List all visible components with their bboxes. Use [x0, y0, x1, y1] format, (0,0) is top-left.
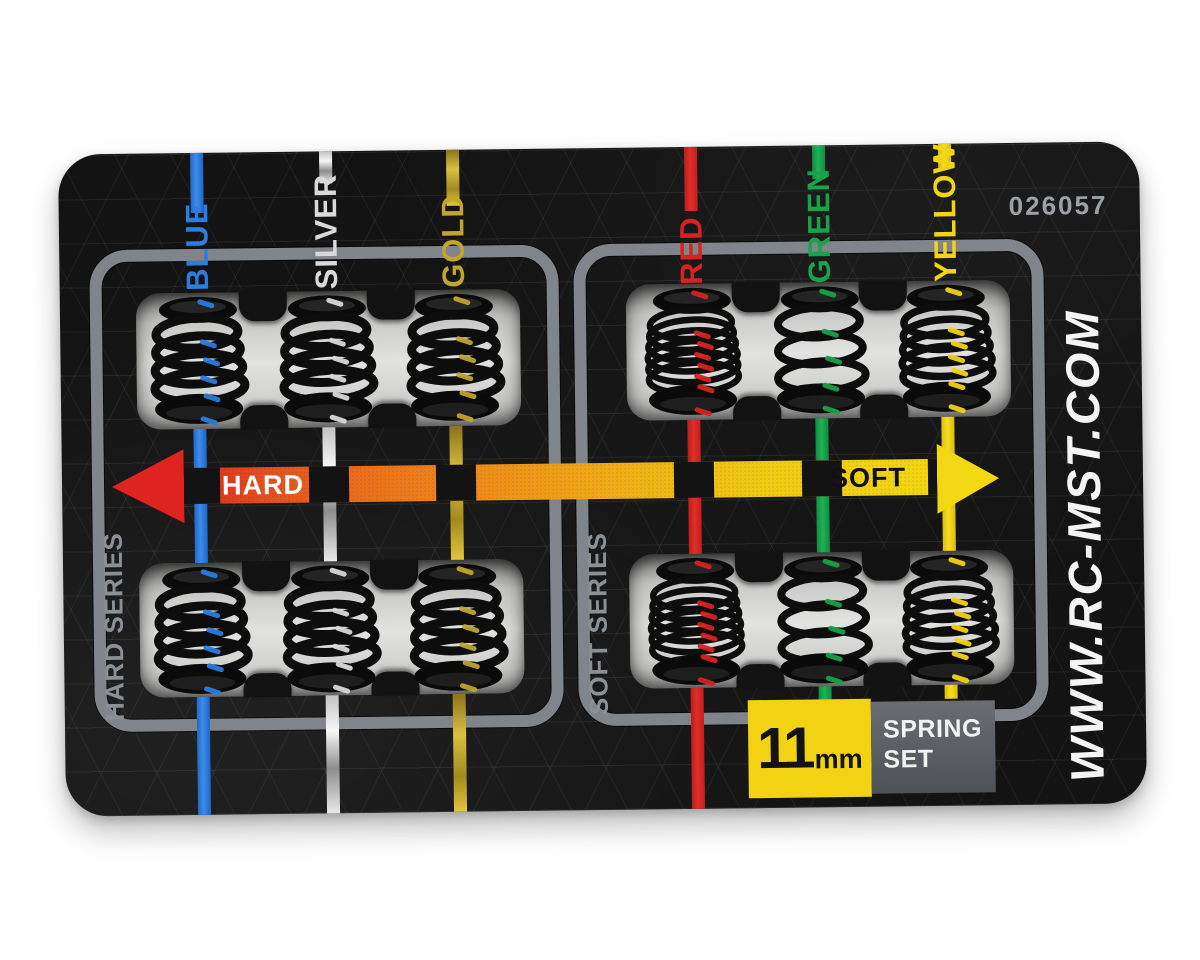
part-number: 026057: [1009, 190, 1108, 222]
website-text: WWW.RC-MST.COM: [1057, 242, 1111, 783]
spring-green-soft: [764, 280, 878, 419]
spring-blue-hard: [142, 290, 256, 429]
stripe-yellow-bottom: [944, 685, 957, 699]
size-unit: mm: [814, 745, 862, 773]
soft-scale-label: SOFT: [807, 459, 929, 496]
spring-windows: [58, 141, 1139, 154]
badge-line2: SET: [883, 743, 995, 774]
stripe-silver-bottom: [325, 695, 339, 813]
stripe-red-top: [683, 147, 697, 211]
badge-line1: SPRING: [883, 713, 995, 744]
stripe-blue-bottom: [196, 697, 210, 815]
stripe-red-bottom: [690, 688, 704, 809]
band-gap-red: [674, 462, 714, 498]
stripe-gold-bottom: [452, 694, 466, 812]
product-photo: HARD SERIES SOFT SERIES WWW.RC-MST.COM 0…: [0, 0, 1200, 960]
hard-scale-label: HARD: [198, 466, 328, 504]
spring-yellow-soft: [890, 278, 1004, 417]
spring-set-badge: SPRING SET: [871, 700, 996, 794]
color-label-yellow: YELLOW: [922, 170, 967, 283]
color-label-blue: BLUE: [175, 215, 220, 292]
band-gaps: [58, 141, 1139, 154]
spring-green-soft: [767, 550, 881, 689]
band-gap-gold: [436, 465, 476, 501]
spring-gold-hard: [398, 287, 512, 426]
spring-silver-hard: [274, 559, 388, 698]
color-label-silver: SILVER: [303, 185, 348, 290]
spring-set-card: HARD SERIES SOFT SERIES WWW.RC-MST.COM 0…: [58, 141, 1147, 816]
spring-gold-hard: [401, 557, 515, 696]
size-badge: 11 mm: [748, 699, 872, 798]
spring-blue-hard: [145, 560, 259, 699]
spring-red-soft: [639, 551, 753, 690]
color-label-red: RED: [669, 213, 714, 286]
color-label-gold: GOLD: [431, 208, 476, 289]
spring-red-soft: [636, 281, 750, 420]
spring-silver-hard: [271, 289, 385, 428]
spring-yellow-soft: [893, 548, 1007, 687]
soft-series-label: SOFT SERIES: [584, 520, 612, 715]
color-label-green: GREEN: [796, 181, 841, 284]
color-stripes: BLUESILVERGOLDREDGREENYELLOW: [58, 141, 1139, 154]
size-value: 11: [757, 719, 813, 778]
hard-series-label: HARD SERIES: [100, 526, 128, 721]
